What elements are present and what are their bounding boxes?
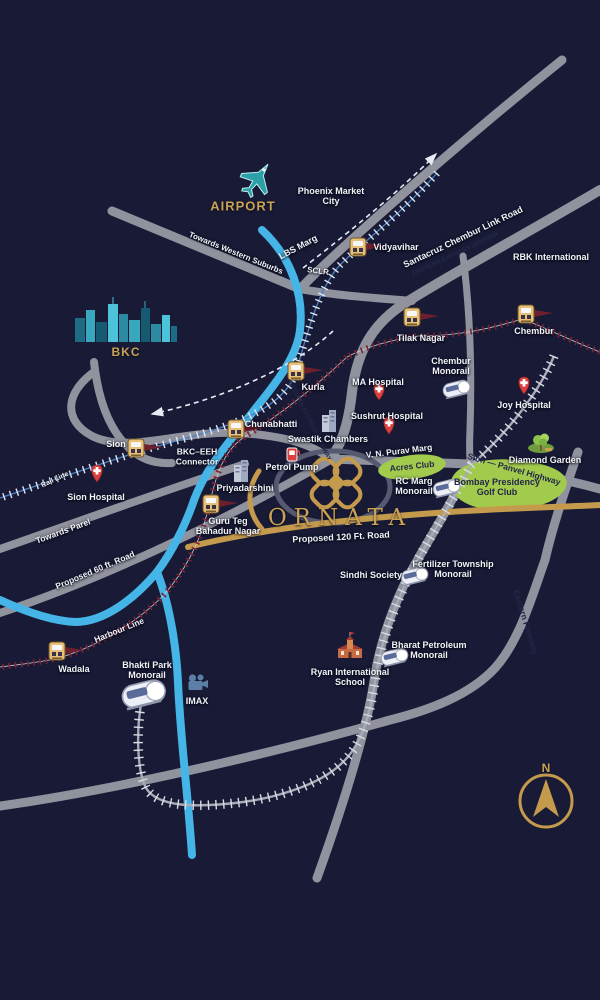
chembur-station-icon — [518, 305, 553, 323]
petrol-pump-label: Petrol Pump — [265, 462, 318, 472]
swastik-chambers-building-icon — [322, 410, 336, 432]
golf-club-label: Bombay Presidency Golf Club — [446, 477, 548, 497]
wadala-label: Wadala — [58, 664, 89, 674]
bhakti-park-monorail-icon — [120, 678, 168, 711]
tilak-nagar-station-icon — [404, 308, 439, 326]
sushrut-hospital-label: Sushrut Hospital — [351, 411, 423, 421]
road-towards-western-suburbs — [112, 211, 300, 289]
bkc-skyline-icon — [75, 297, 177, 342]
sion-hospital-label: Sion Hospital — [67, 492, 125, 502]
airport-label: AIRPORT — [210, 199, 276, 214]
phoenix-market-city-label: Phoenix Market City — [295, 186, 367, 206]
imax-camera-icon — [189, 674, 209, 690]
vidyavihar-label: Vidyavihar — [373, 242, 418, 252]
airplane-icon — [233, 155, 281, 204]
ma-hospital-label: MA Hospital — [352, 377, 404, 387]
chembur-label: Chembur — [514, 326, 554, 336]
joy-hospital-label: Joy Hospital — [497, 400, 551, 410]
bkc-eeh-connector-label: BKC–EEH Connector — [163, 447, 231, 466]
location-map: AIRPORT BKC Phoenix Market City RBK Inte… — [0, 0, 600, 1000]
ryan-school-label: Ryan International School — [302, 667, 398, 687]
joy-hospital-pin-icon — [519, 377, 530, 394]
rbk-international-label: RBK International — [513, 252, 589, 262]
sindhi-society-label: Sindhi Society — [340, 570, 402, 580]
sion-hospital-pin-icon — [92, 465, 103, 482]
priyadarshini-label: Priyadarshini — [216, 483, 273, 493]
imax-label: IMAX — [186, 696, 209, 706]
compass-icon — [520, 775, 572, 827]
sion-label: Sion — [106, 439, 126, 449]
diamond-garden-label: Diamond Garden — [509, 455, 582, 465]
compass-north-label: N — [542, 761, 551, 775]
fertilizer-monorail-label: Fertilizer Township Monorail — [407, 559, 499, 579]
kurla-label: Kurla — [301, 382, 324, 392]
gtb-nagar-label: Guru Teg Bahadur Nagar — [195, 516, 261, 536]
tilak-nagar-label: Tilak Nagar — [397, 333, 445, 343]
ryan-school-icon — [337, 632, 363, 658]
ornata-wordmark: ORNATA — [268, 505, 412, 531]
kurla-station-icon — [288, 362, 323, 380]
chembur-monorail-label: Chembur Monorail — [422, 356, 480, 376]
bhakti-park-monorail-label: Bhakti Park Monorail — [115, 660, 179, 680]
bharat-petroleum-monorail-label: Bharat Petroleum Monorail — [382, 640, 476, 660]
wadala-station-icon — [49, 642, 84, 660]
chembur-monorail-icon — [442, 379, 472, 400]
swastik-chambers-label: Swastik Chambers — [288, 434, 368, 444]
road-sclr — [300, 289, 412, 301]
chunabhatti-label: Chunabhatti — [245, 419, 298, 429]
bkc-label: BKC — [112, 345, 141, 359]
rc-marg-monorail-label: RC Marg Monorail — [388, 476, 440, 496]
